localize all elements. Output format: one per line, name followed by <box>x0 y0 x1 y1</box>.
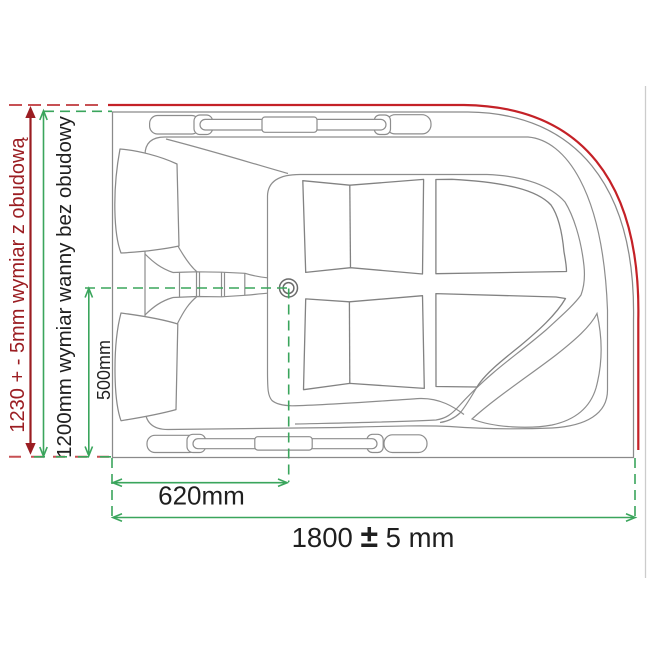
svg-text:1800 ± 5 mm: 1800 ± 5 mm <box>292 518 455 554</box>
svg-text:620mm: 620mm <box>158 481 245 511</box>
svg-text:500mm: 500mm <box>94 340 114 400</box>
svg-text:1230 + - 5mm wymiar z obudową: 1230 + - 5mm wymiar z obudową <box>7 137 29 433</box>
svg-text:1200mm wymiar wanny bez obudow: 1200mm wymiar wanny bez obudowy <box>53 115 76 458</box>
